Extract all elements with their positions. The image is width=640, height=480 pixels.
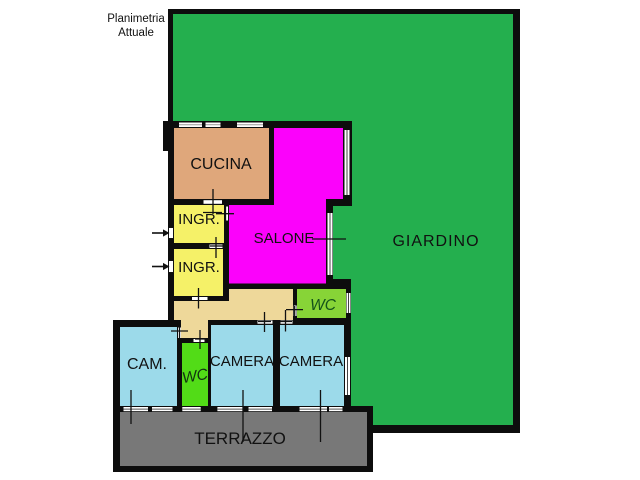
svg-text:WC: WC	[310, 297, 337, 314]
svg-text:INGR.: INGR.	[178, 211, 220, 228]
svg-text:TERRAZZO: TERRAZZO	[194, 429, 286, 448]
svg-text:Attuale: Attuale	[118, 27, 154, 39]
svg-text:INGR.: INGR.	[178, 259, 220, 276]
svg-text:Planimetria: Planimetria	[107, 13, 165, 25]
svg-text:CAMERA: CAMERA	[210, 353, 274, 370]
svg-text:CUCINA: CUCINA	[190, 156, 252, 173]
svg-text:GIARDINO: GIARDINO	[392, 233, 479, 250]
svg-text:CAMERA: CAMERA	[279, 353, 343, 370]
svg-text:SALONE: SALONE	[254, 230, 315, 247]
svg-text:CAM.: CAM.	[127, 356, 167, 373]
